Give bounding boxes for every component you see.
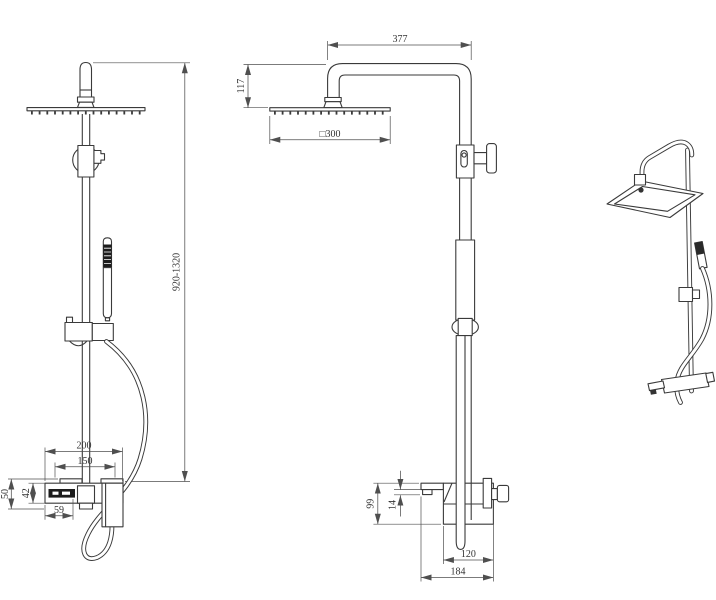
mixer-handle-front xyxy=(497,485,508,501)
spout-aerator-front xyxy=(423,490,432,495)
spout-front xyxy=(421,483,443,489)
dim-label-117: 117 xyxy=(236,79,247,94)
dim-label-59: 59 xyxy=(54,505,64,516)
shower-column-front xyxy=(452,178,478,336)
dimension-head-size: □300 xyxy=(270,116,390,144)
bracket-flange xyxy=(487,144,497,173)
hand-shower-side xyxy=(103,238,111,321)
dimension-height-body: 42 xyxy=(21,483,45,503)
dim-label-200: 200 xyxy=(77,441,92,452)
perspective-view xyxy=(607,142,715,403)
dimension-arm-reach: 377 xyxy=(328,34,472,60)
shower-arm-front xyxy=(324,64,471,145)
dim-label-14: 14 xyxy=(388,500,399,510)
dim-label-99: 99 xyxy=(366,499,377,509)
rain-shower-head-side xyxy=(27,108,145,113)
shower-set-technical-drawing: 920-1320 xyxy=(0,0,716,600)
shower-column-side xyxy=(78,63,95,484)
dim-label-184: 184 xyxy=(451,567,466,578)
head-connector-3d xyxy=(635,175,646,186)
mixer-handle-3d xyxy=(706,372,715,382)
dim-label-height-range: 920-1320 xyxy=(172,253,183,291)
rain-shower-head-front xyxy=(270,108,390,113)
dimension-spout-gap: 14 xyxy=(388,471,421,517)
wall-bracket-front xyxy=(456,144,496,178)
dimension-width-inner: 150 xyxy=(55,456,115,478)
dim-label-150: 150 xyxy=(78,456,93,467)
dim-label-120: 120 xyxy=(461,549,476,560)
dim-label-square-300: □300 xyxy=(319,129,340,140)
dim-label-42: 42 xyxy=(21,488,32,498)
wall-bracket-side xyxy=(73,146,105,178)
dimension-head-drop: 117 xyxy=(236,65,326,108)
spout-aerator-dark xyxy=(49,489,76,498)
mixer-valve-3d xyxy=(662,373,710,393)
side-view: 920-1320 xyxy=(0,63,190,559)
dim-label-377: 377 xyxy=(393,34,408,45)
slider-bracket-3d xyxy=(679,288,693,302)
mixer-valve-side xyxy=(45,479,123,527)
dim-label-50: 50 xyxy=(0,489,11,499)
hand-shower-wand-front xyxy=(456,336,465,550)
technical-drawing-canvas: 920-1320 xyxy=(0,0,716,600)
front-view: 377 117 □300 xyxy=(236,34,509,582)
telescopic-sleeve xyxy=(456,240,475,320)
